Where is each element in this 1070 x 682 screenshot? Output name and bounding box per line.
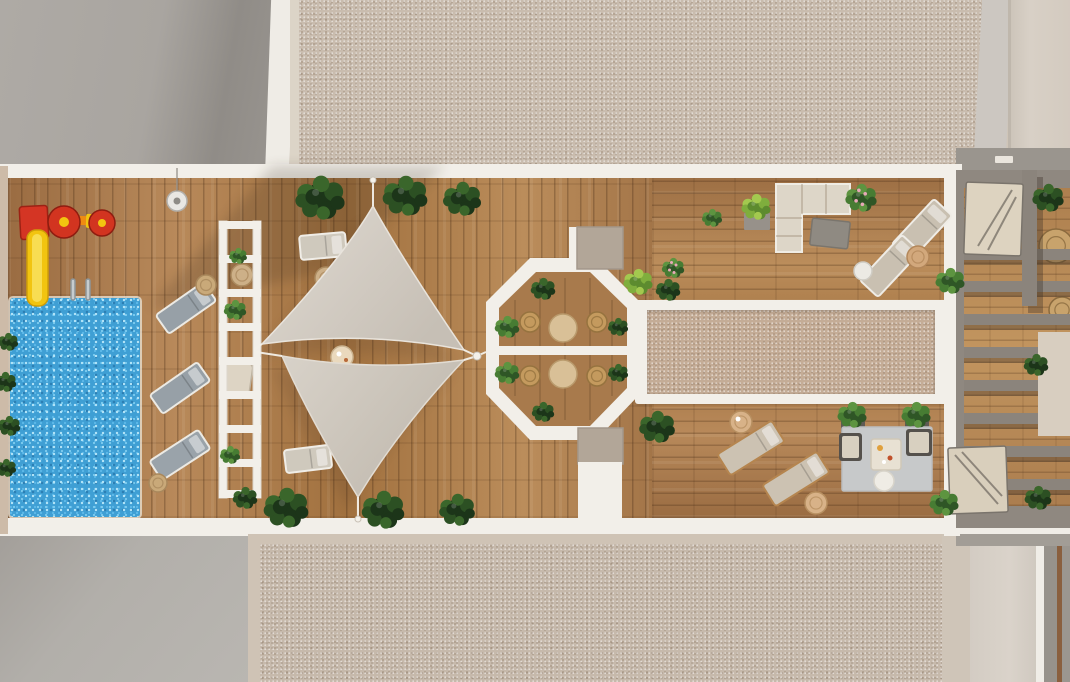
- plant-highlight: [1032, 360, 1036, 364]
- plant-leaf: [10, 467, 16, 473]
- plant-leaf: [505, 331, 512, 338]
- side-table-pool-1: [196, 275, 216, 295]
- plant: [639, 411, 675, 443]
- plant-leaf: [922, 414, 930, 422]
- plant-leaf: [711, 221, 716, 226]
- plant-leaf: [402, 204, 414, 216]
- lounge-table-dish-3: [882, 460, 886, 464]
- plant: [656, 279, 681, 301]
- plant-leaf: [465, 508, 475, 518]
- plant-leaf: [665, 425, 675, 435]
- plant-flower: [675, 264, 678, 267]
- plant-leaf: [243, 502, 250, 509]
- lounger-pool-3-bed: [149, 430, 210, 481]
- plant-leaf: [1041, 364, 1048, 371]
- plant: [0, 416, 20, 436]
- plant-leaf: [1046, 203, 1054, 211]
- lounger-deck-bottom: [284, 445, 332, 473]
- plant-leaf: [850, 420, 858, 428]
- slat-structure-rung: [219, 289, 261, 297]
- slat-structure-rung: [219, 221, 261, 229]
- pergola-floor-patch: [1038, 332, 1070, 436]
- plant-leaf: [868, 197, 877, 206]
- plant: [0, 459, 16, 477]
- plant-highlight: [847, 410, 851, 414]
- plant-leaf: [622, 326, 628, 332]
- sail-anchor-pole: [355, 516, 361, 522]
- pool-handrail-left: [71, 279, 75, 300]
- pavilion-chair-sw: [520, 366, 540, 386]
- plant-leaf: [283, 516, 295, 528]
- plant-leaf: [331, 196, 345, 210]
- sail-anchor-pole: [473, 352, 481, 360]
- plant-highlight: [3, 464, 6, 467]
- plant-highlight: [451, 503, 456, 508]
- plant-leaf: [3, 386, 9, 392]
- deck-center-table-plate-2: [344, 358, 348, 362]
- plant-leaf: [250, 497, 257, 504]
- plant-leaf: [666, 294, 673, 301]
- plant-leaf: [956, 280, 964, 288]
- plant-leaf: [392, 508, 404, 520]
- plant-highlight: [376, 502, 382, 508]
- plant: [439, 494, 475, 526]
- plant-flower: [673, 271, 676, 274]
- plant: [264, 488, 309, 528]
- plant-highlight: [539, 284, 543, 288]
- plant-leaf: [380, 517, 391, 528]
- plant-leaf: [10, 381, 16, 387]
- plant: [0, 333, 18, 351]
- pavilion-table-south: [549, 360, 577, 388]
- plant-highlight: [911, 410, 915, 414]
- plant-leaf: [12, 341, 18, 347]
- plant-flower: [670, 261, 673, 264]
- spinner-disc-right-hub: [98, 219, 106, 227]
- side-table-pool-2: [149, 474, 167, 492]
- plant-leaf: [548, 411, 554, 417]
- lounger-se-1-bed: [717, 420, 785, 475]
- pavilion-chair-se: [587, 366, 607, 386]
- plant-leaf: [14, 425, 20, 431]
- pergola-beam: [958, 314, 1070, 325]
- lounge-table: [871, 439, 901, 470]
- plant-leaf: [655, 433, 665, 443]
- plant-leaf: [1044, 497, 1052, 505]
- plant: [702, 209, 722, 227]
- plant-highlight: [398, 188, 404, 194]
- plant-highlight: [5, 422, 8, 425]
- plant: [0, 372, 16, 392]
- plant-highlight: [633, 277, 637, 281]
- pavilion-chair-ne: [587, 312, 607, 332]
- plant-leaf: [716, 217, 722, 223]
- scene-overlay: [0, 0, 1070, 682]
- plant-leaf: [505, 377, 512, 384]
- plant-flower: [854, 199, 858, 203]
- lounger-deck-bottom-pillow: [316, 448, 328, 466]
- plant-leaf: [858, 414, 866, 422]
- plant-highlight: [1043, 192, 1047, 196]
- lounger-pool-2: [150, 362, 211, 414]
- plant-highlight: [312, 189, 319, 196]
- lounger-pool-2-bed: [150, 362, 211, 414]
- plant-highlight: [939, 498, 943, 502]
- side-table-se-1: [730, 411, 752, 433]
- plant-leaf: [950, 502, 958, 510]
- plant-leaf: [754, 212, 762, 220]
- plant-highlight: [669, 264, 672, 267]
- lounge-table-dish-1: [877, 445, 883, 451]
- lounger-se-1: [717, 420, 785, 475]
- pool-handrail-right: [86, 279, 90, 300]
- pavilion-planter-edge: [569, 227, 577, 269]
- pavilion-divider: [486, 346, 640, 355]
- plant-highlight: [231, 306, 234, 309]
- plant-highlight: [241, 493, 245, 497]
- pavilion-chair-nw: [520, 312, 540, 332]
- side-table-se-2: [805, 492, 827, 514]
- plant-leaf: [470, 197, 481, 208]
- plant-leaf: [317, 206, 330, 219]
- plant-highlight: [709, 214, 712, 217]
- plant-highlight: [456, 192, 461, 197]
- plant-highlight: [503, 322, 507, 326]
- step-marker: [995, 156, 1013, 163]
- wicker-table-ladder: [231, 264, 253, 286]
- plant-highlight: [279, 500, 285, 506]
- plant-leaf: [415, 194, 428, 207]
- plant-highlight: [664, 285, 668, 289]
- plant-leaf: [5, 471, 10, 476]
- plant-leaf: [541, 416, 547, 422]
- plant-highlight: [615, 323, 618, 326]
- plant-leaf: [512, 372, 519, 379]
- plant-highlight: [751, 202, 755, 206]
- pergola-vbeam: [1022, 170, 1037, 306]
- side-table-ne-tan: [907, 246, 929, 268]
- plant: [362, 491, 404, 529]
- plant-highlight: [1034, 493, 1038, 497]
- plant: [443, 182, 481, 216]
- lounger-pool-3: [149, 430, 210, 481]
- plant-leaf: [296, 506, 309, 519]
- plant-highlight: [235, 253, 238, 256]
- slat-structure-rung: [219, 391, 261, 399]
- plant-highlight: [651, 420, 656, 425]
- deck-center-table-plate: [337, 352, 342, 357]
- plant-leaf: [762, 206, 770, 214]
- plant-leaf: [1034, 369, 1041, 376]
- plant-highlight: [856, 192, 860, 196]
- plant: [662, 258, 684, 278]
- slat-structure-rung: [219, 357, 261, 365]
- plant-highlight: [503, 368, 507, 372]
- plant-leaf: [459, 205, 469, 215]
- pergola-beam: [958, 281, 1070, 292]
- plant-leaf: [644, 281, 652, 289]
- plant-highlight: [539, 408, 542, 411]
- plant-leaf: [455, 516, 465, 526]
- plant-flower: [863, 192, 867, 196]
- plant-leaf: [7, 345, 12, 350]
- plant-highlight: [5, 338, 8, 341]
- sail-anchor-pole: [370, 177, 376, 183]
- plant-flower: [668, 269, 671, 272]
- plant-leaf: [1036, 503, 1043, 510]
- plant-leaf: [541, 293, 548, 300]
- plant-highlight: [615, 369, 618, 372]
- plant-leaf: [242, 255, 247, 260]
- lounge-chair-left-cushion: [842, 436, 859, 458]
- lounge-table-dish-2: [888, 456, 893, 461]
- plant-leaf: [512, 326, 519, 333]
- plant-leaf: [673, 289, 680, 296]
- plant-leaf: [942, 508, 950, 516]
- slide-chute-lane: [32, 234, 42, 302]
- rooftop-render: [0, 0, 1070, 682]
- side-table-ne-white: [854, 262, 872, 280]
- plant-leaf: [240, 309, 246, 315]
- slat-structure-rung: [219, 323, 261, 331]
- pendant-lamp-center: [174, 198, 181, 205]
- plant-leaf: [237, 259, 242, 264]
- slat-structure-rung: [219, 425, 261, 433]
- plant-leaf: [678, 267, 684, 273]
- plant-leaf: [617, 376, 622, 381]
- plant-leaf: [7, 430, 13, 436]
- plant-flower: [861, 202, 865, 206]
- plant-leaf: [233, 314, 239, 320]
- pavilion-table-north: [549, 314, 577, 342]
- plant-highlight: [945, 276, 949, 280]
- plant-leaf: [622, 372, 628, 378]
- lounger-deck-top-pillow: [331, 235, 343, 254]
- pavilion-column-south: [578, 462, 622, 522]
- plant-leaf: [234, 454, 240, 460]
- plant-highlight: [1, 378, 4, 381]
- plant-leaf: [617, 330, 622, 335]
- plant-leaf: [948, 286, 956, 294]
- plant-leaf: [914, 420, 922, 428]
- side-table-se-1-tray: [736, 417, 741, 422]
- plant-leaf: [548, 288, 555, 295]
- pavilion-planter-south: [578, 428, 623, 464]
- plant-leaf: [1055, 197, 1064, 206]
- spinner-disc-left-hub: [59, 217, 69, 227]
- coffee-table: [810, 218, 851, 249]
- plant-flower: [857, 188, 861, 192]
- plant-leaf: [636, 287, 644, 295]
- lounge-pouf: [874, 471, 894, 491]
- plant-leaf: [229, 458, 234, 463]
- plant-highlight: [227, 451, 230, 454]
- pavilion-planter-north: [577, 227, 623, 269]
- lounge-chair-right-cushion: [909, 432, 929, 453]
